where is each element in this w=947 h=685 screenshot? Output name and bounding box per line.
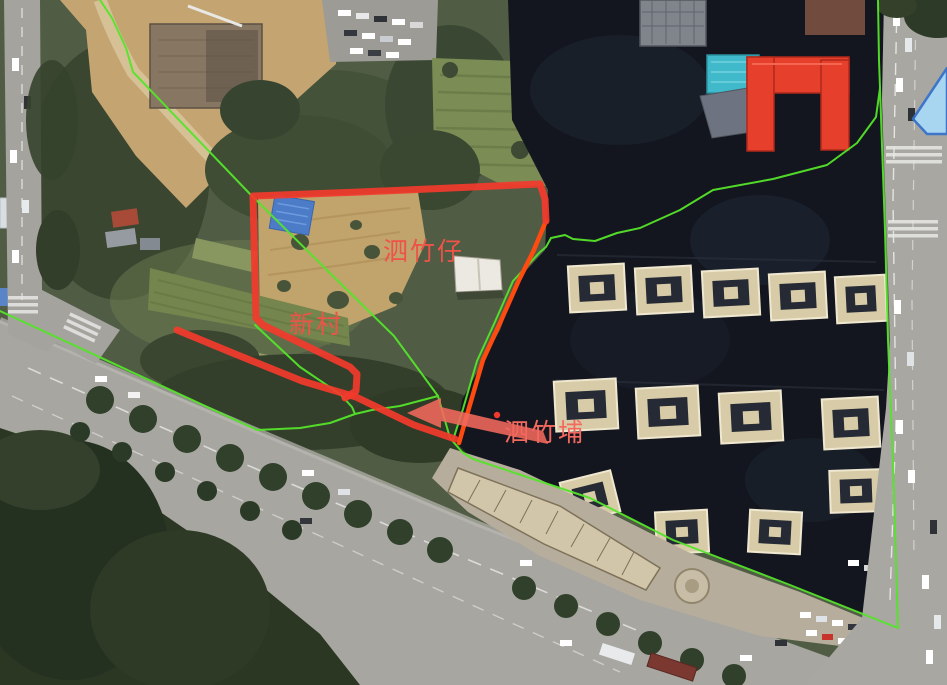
map-canvas[interactable]: 泗竹仔 新村 泗竹埔 <box>0 0 947 685</box>
gray-tower <box>640 0 706 46</box>
blue-tarp <box>269 195 314 235</box>
parked-vehicles <box>322 0 438 62</box>
satellite-terrain-layer <box>0 0 947 685</box>
place-label-sizhuzai: 泗竹仔 <box>383 240 464 265</box>
place-label-xincun: 新村 <box>289 313 343 338</box>
place-label-sizhupu: 泗竹埔 <box>504 421 585 446</box>
point-marker-dot <box>494 412 500 418</box>
